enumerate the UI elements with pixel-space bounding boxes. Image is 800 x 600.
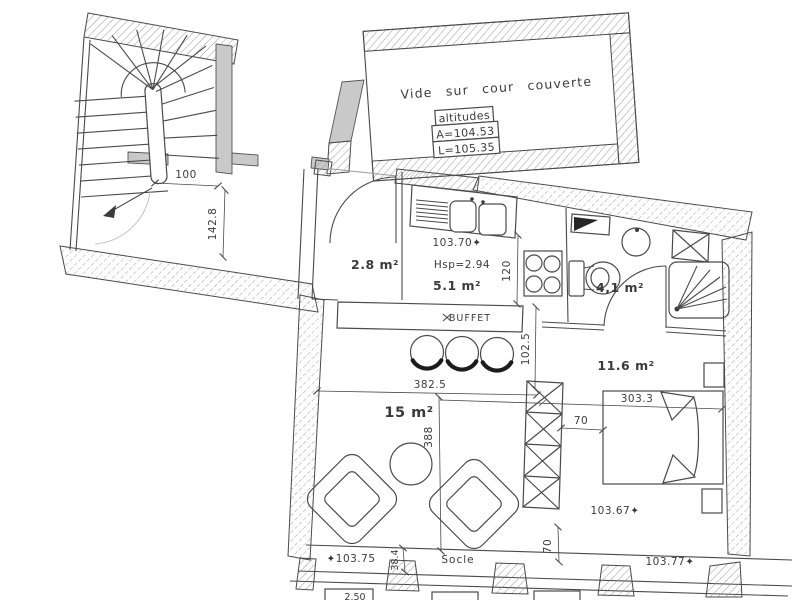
base-level-left: ✦103.75 [326,553,375,565]
socle-pier-4 [598,565,634,596]
dim-label-142-8: 142.8 [207,208,219,241]
entry-area: 2.8 m² [351,257,399,272]
upper-room: Vide sur cour couverte altitudes A=104.5… [363,13,639,181]
dim-label-100: 100 [175,169,197,181]
bedroom-area: 11.6 m² [597,358,654,373]
partial-note: 2.50 [344,592,365,600]
stair-newel [144,83,167,184]
dim-label-38-4: 38.4 [390,549,401,570]
column-xbox [523,381,563,509]
dim-column-to-base: 70 [542,527,559,562]
bedroom: 11.6 m² 103.67✦ [590,358,724,517]
kitchen-level: 103.70✦ [432,237,481,249]
partial-note-boxes: 2.50 [325,589,580,600]
stair-door-swing [95,192,150,244]
buffet-label: BUFFET [449,313,491,324]
coffee-table [390,443,432,485]
sink-basin-left [450,201,476,232]
bathroom-area: 4,1 m² [596,280,644,295]
vent-duct [571,214,610,235]
wall-upper-left-gray [329,80,364,143]
floor-plan: 100 142.8 Vide sur cour couverte altitud… [0,0,800,600]
socle-pier-3 [492,563,528,594]
altitudes-table: altitudes A=104.53 L=105.35 [431,106,500,157]
dim-label-70-base: 70 [542,539,554,553]
dim-label-388: 388 [423,426,435,448]
stair-right-wall [216,44,232,174]
duct-xbox [672,230,709,262]
dim-landing-depth: 142.8 [207,190,225,257]
dim-label-303-3: 303.3 [621,393,654,405]
armchair-1 [303,450,402,549]
shower [669,262,729,318]
dim-label-102-5: 102.5 [520,333,532,366]
nightstand-bottom [702,489,722,513]
living-room: BUFFET 15 m² [303,299,524,553]
dim-kitchen-depth: 120 [501,235,518,304]
socle-pier-corner [706,562,742,597]
drainboard [416,200,448,223]
washbasin-faucet [635,228,639,232]
stairwell [70,13,258,251]
bar-stool-2 [446,337,479,370]
wall-entry-top-left [314,160,332,176]
floor-plan-page: 100 142.8 Vide sur cour couverte altitud… [0,0,800,600]
washbasin [622,228,650,256]
socle-pier-1 [296,558,316,590]
kitchen-area: 5.1 m² [433,278,481,293]
dim-label-382-5: 382.5 [414,379,447,391]
upper-room-label: Vide sur cour couverte [400,74,593,102]
wall-stub-right [232,153,258,166]
bedroom-level: 103.67✦ [590,505,639,517]
bar-stool-1 [411,336,444,369]
stove [524,251,562,296]
kitchen-ceiling-height: Hsp=2.94 [434,259,490,271]
socle-base: ✦103.75 Socle 103.77✦ 38.4 2.50 [290,545,792,600]
sink-faucet-2 [481,200,485,204]
bathroom-door [604,266,666,328]
dim-label-70-bed: 70 [574,415,588,427]
nightstand-top [704,363,724,387]
living-area: 15 m² [384,405,433,421]
wall-stair-bottom [60,246,318,312]
sink-basin-right [479,204,506,235]
base-level-right: 103.77✦ [645,556,694,568]
wall-upper-top [363,13,630,52]
sink-faucet [470,197,474,201]
bar-stool-3 [481,338,514,371]
wall-right [722,232,752,556]
dim-living-width: 382.5 [317,379,537,395]
entry-door [330,177,396,243]
dim-label-120: 120 [501,260,513,282]
wall-living-left [288,295,324,560]
dim-column-to-bed: 70 [561,415,603,430]
stair-direction-arrow [103,188,152,218]
armchair-2 [425,455,524,554]
buffet: BUFFET [337,302,523,332]
socle-label: Socle [441,554,474,566]
